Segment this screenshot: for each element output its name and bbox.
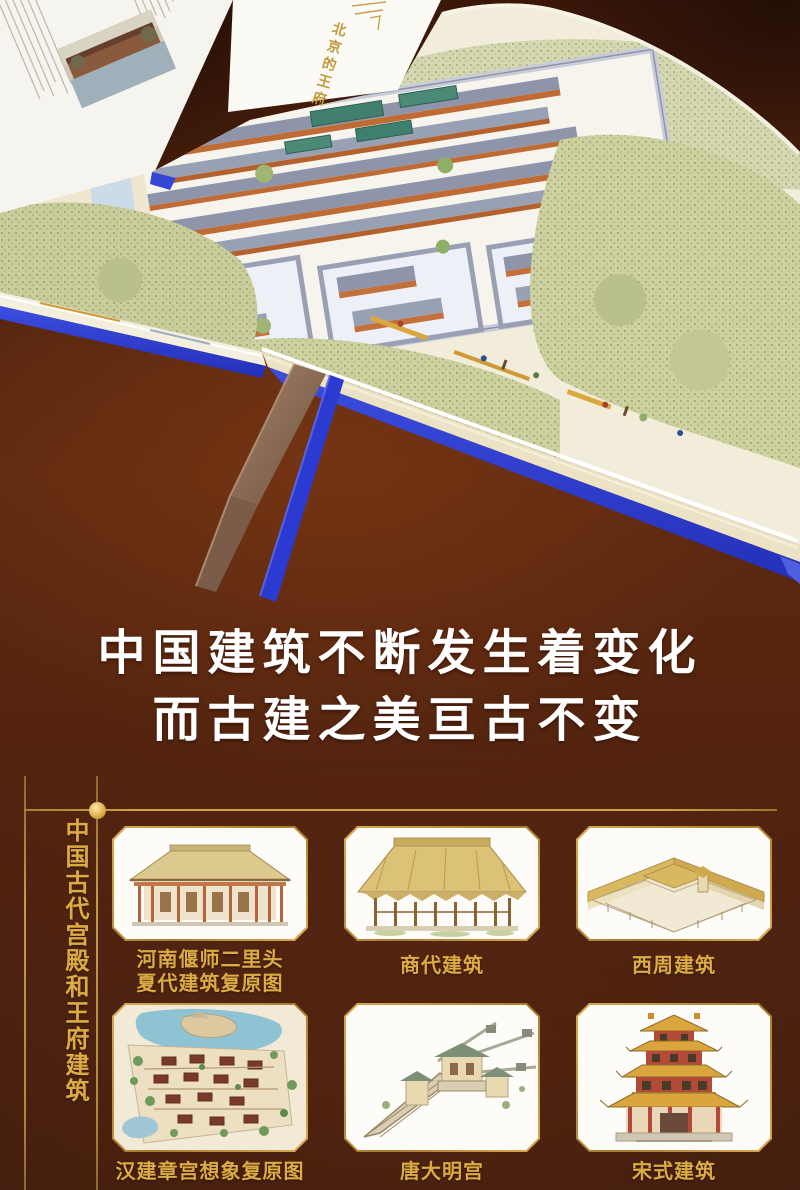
zhou-courtyard-illustration	[578, 828, 770, 939]
card-inner	[578, 1005, 770, 1150]
tile-song-pavilion	[576, 1003, 772, 1152]
han-palace-illustration	[114, 1005, 306, 1150]
tile-caption: 汉建章宫想象复原图	[112, 1160, 308, 1184]
gold-rail-line-outer	[24, 776, 26, 1190]
tile-xia-restoration	[112, 826, 308, 941]
headline-line-2: 而古建之美亘古不变	[0, 687, 800, 754]
section-vertical-title: 中国古代宫殿和王府建筑	[59, 818, 89, 1104]
card-inner	[114, 1005, 306, 1150]
card-inner	[346, 828, 538, 939]
tile-tang-daminggong	[344, 1003, 540, 1152]
caption-line-1: 汉建章宫想象复原图	[112, 1160, 308, 1184]
book-promo-poster: 北京的王府 中国建筑不断发生着变化 而古建之美亘古不变 中国古代宫殿和王府建筑	[0, 0, 800, 1190]
tile-han-palace	[112, 1003, 308, 1152]
tang-palace-illustration	[346, 1005, 538, 1150]
song-pavilion-illustration	[578, 1005, 770, 1150]
gold-dot-ornament	[89, 802, 106, 819]
headline-line-1: 中国建筑不断发生着变化	[0, 620, 800, 687]
tile-caption: 西周建筑	[576, 954, 772, 978]
tile-caption: 商代建筑	[344, 954, 540, 978]
caption-line-1: 商代建筑	[344, 954, 540, 978]
card-inner	[114, 828, 306, 939]
tile-caption: 唐大明宫	[344, 1160, 540, 1184]
xia-hall-illustration	[114, 828, 306, 939]
card-inner	[346, 1005, 538, 1150]
caption-line-1: 宋式建筑	[576, 1160, 772, 1184]
gold-rail-line-horizontal	[24, 809, 777, 811]
tile-caption: 河南偃师二里头 夏代建筑复原图	[112, 948, 308, 996]
card-inner	[578, 828, 770, 939]
headline: 中国建筑不断发生着变化 而古建之美亘古不变	[0, 620, 800, 754]
caption-line-1: 河南偃师二里头	[112, 948, 308, 972]
open-book-illustration	[0, 0, 800, 620]
caption-line-1: 西周建筑	[576, 954, 772, 978]
tile-zhou	[576, 826, 772, 941]
caption-line-1: 唐大明宫	[344, 1160, 540, 1184]
tile-shang	[344, 826, 540, 941]
tile-caption: 宋式建筑	[576, 1160, 772, 1184]
caption-line-2: 夏代建筑复原图	[112, 972, 308, 996]
open-book-photo: 北京的王府	[0, 0, 800, 620]
gold-rail-line-inner	[96, 776, 98, 1190]
framed-card	[112, 826, 308, 941]
shang-hall-illustration	[346, 828, 538, 939]
